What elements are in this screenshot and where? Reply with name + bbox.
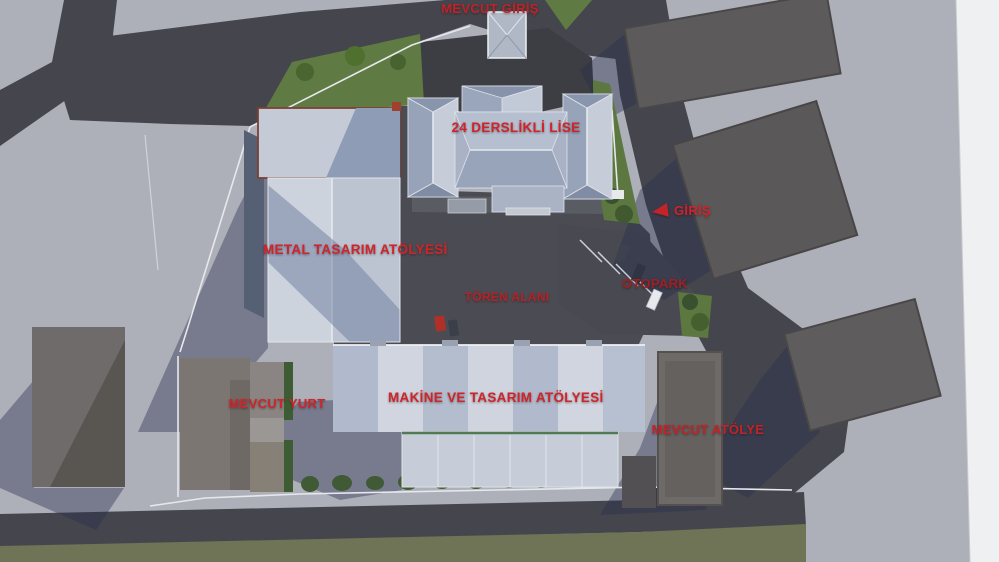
site-plan-render: MEVCUT GİRİŞ 24 DERSLİKLİ LİSE METAL TAS…: [0, 0, 999, 562]
building-school: [408, 86, 612, 215]
workshop-extension: [402, 432, 618, 487]
label-school: 24 DERSLİKLİ LİSE: [438, 121, 594, 136]
label-existing-workshop: MEVCUT ATÖLYE: [649, 423, 767, 437]
building-dormitory: [180, 358, 284, 492]
label-metal-workshop: METAL TASARIM ATÖLYESİ: [263, 243, 447, 258]
label-existing-dormitory: MEVCUT YURT: [224, 397, 330, 411]
site-plan-canvas: [0, 0, 999, 562]
building-existing-west: [32, 327, 125, 487]
building-entrance-gatehouse: [488, 12, 526, 58]
label-ceremony-area: TÖREN ALANI: [453, 291, 561, 304]
label-entrance: GİRİŞ: [674, 204, 711, 218]
label-existing-entrance: MEVCUT GİRİŞ: [430, 2, 550, 16]
building-metal-workshop: [244, 102, 401, 342]
entrance-callout: GİRİŞ: [652, 204, 711, 218]
car: [434, 315, 446, 331]
tree-icon: [615, 205, 633, 223]
tree-icon: [691, 313, 709, 331]
label-parking: OTOPARK: [614, 277, 696, 291]
tree-icon: [682, 294, 698, 310]
entrance-arrow-icon: [651, 203, 669, 219]
label-machine-workshop: MAKİNE VE TASARIM ATÖLYESİ: [388, 391, 592, 406]
